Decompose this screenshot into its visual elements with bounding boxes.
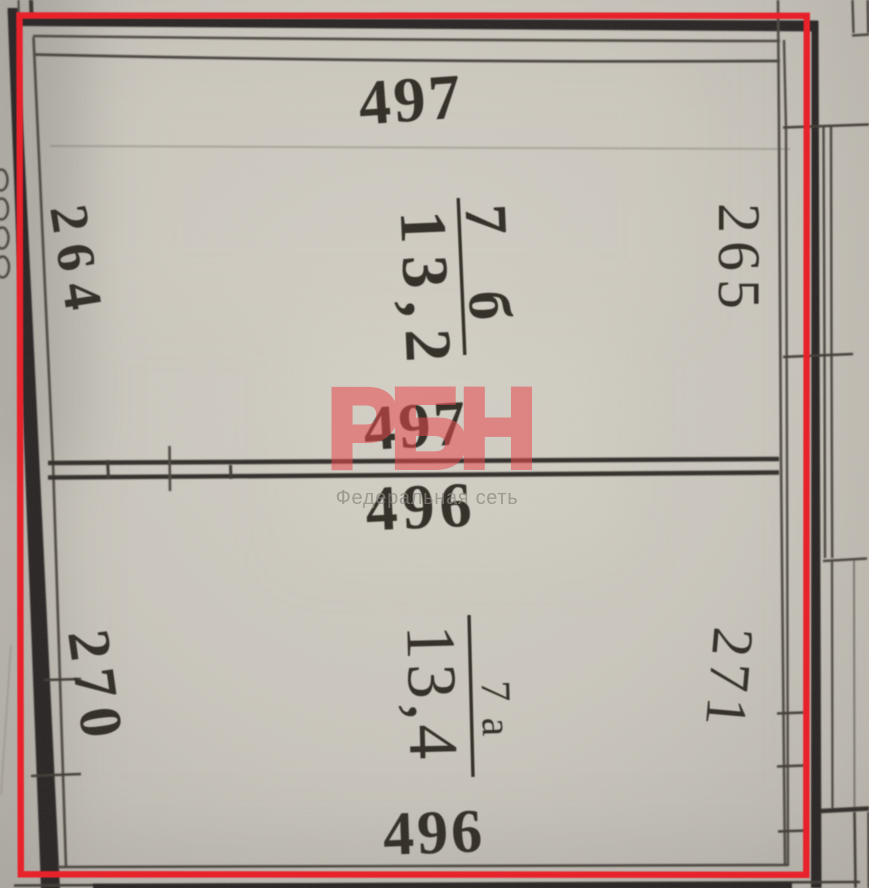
svg-text:Федеральная сеть: Федеральная сеть xyxy=(336,487,519,509)
svg-text:РБН: РБН xyxy=(327,367,529,492)
